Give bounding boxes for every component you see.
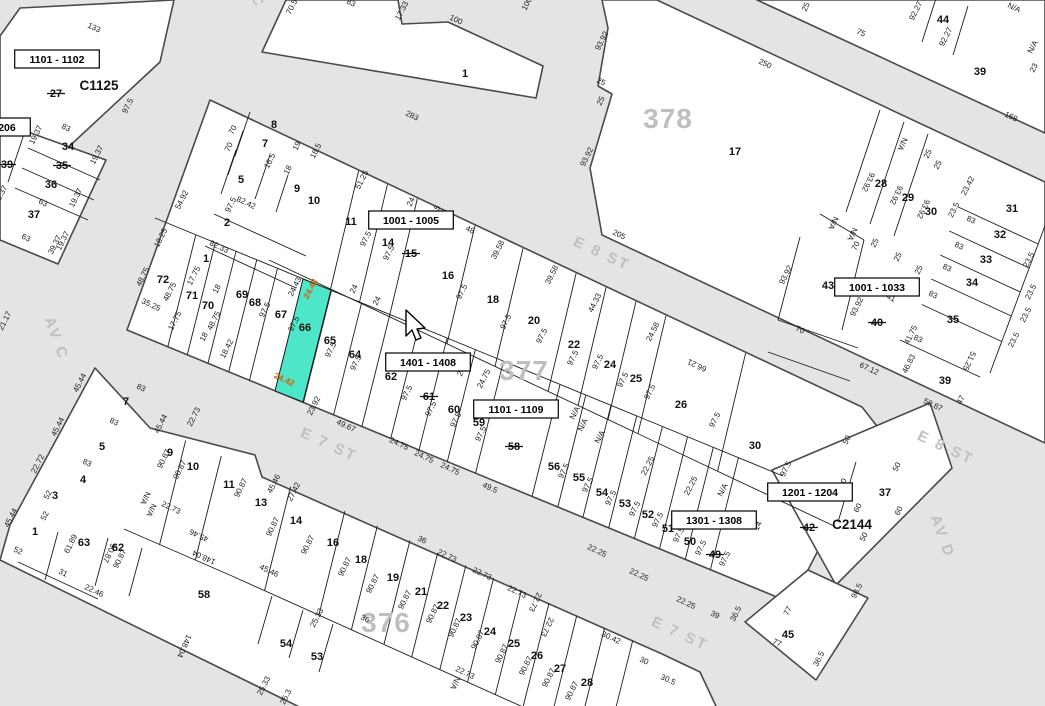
- lot-label-53[interactable]: 53: [619, 498, 631, 510]
- lot-label-60[interactable]: 60: [448, 404, 460, 416]
- lot-label-62[interactable]: 62: [112, 542, 124, 554]
- lot-label-68[interactable]: 68: [249, 297, 261, 309]
- lot-label-22[interactable]: 22: [568, 339, 580, 351]
- lot-label-27[interactable]: 27: [554, 663, 566, 675]
- lot-label-50[interactable]: 50: [684, 536, 696, 548]
- lot-label-63[interactable]: 63: [78, 537, 90, 549]
- lot-label-34[interactable]: 34: [966, 277, 979, 289]
- lot-label-8[interactable]: 8: [271, 119, 277, 131]
- address-range-label: 1001 - 1005: [383, 215, 439, 227]
- lot-label-7[interactable]: 7: [262, 138, 268, 150]
- block-number-378: 378: [643, 103, 693, 134]
- address-range-label: 1401 - 1408: [400, 357, 456, 369]
- lot-label-20[interactable]: 20: [528, 315, 540, 327]
- lot-label-21[interactable]: 21: [415, 586, 427, 598]
- lot-label-11[interactable]: 11: [223, 479, 235, 491]
- lot-label-26[interactable]: 26: [531, 650, 543, 662]
- lot-label-13[interactable]: 13: [255, 497, 267, 509]
- lot-label-45[interactable]: 45: [782, 629, 794, 641]
- lot-label-18[interactable]: 18: [487, 294, 499, 306]
- dimension-label: 283: [404, 109, 420, 123]
- address-range-label: 1201 - 1204: [782, 487, 838, 499]
- lot-label-58[interactable]: 58: [198, 589, 210, 601]
- lot-label-54[interactable]: 54: [596, 487, 609, 499]
- lot-label-25[interactable]: 25: [508, 638, 520, 650]
- tax-lot-map-canvas[interactable]: 24.4224.42E 8 STE 8 STE 7 STE 7 STAV CAV…: [0, 0, 1045, 706]
- lot-label-10[interactable]: 10: [308, 195, 320, 207]
- address-range-label: 1101 - 1102: [30, 54, 85, 66]
- address-range-label: 1001 - 1033: [849, 282, 905, 294]
- lot-label-52[interactable]: 52: [642, 509, 654, 521]
- lot-label-64[interactable]: 64: [349, 349, 362, 361]
- lot-label-7[interactable]: 7: [123, 396, 129, 408]
- lot-label-14[interactable]: 14: [290, 515, 303, 527]
- dimension-label: 100: [520, 0, 534, 12]
- lot-label-25[interactable]: 25: [630, 373, 642, 385]
- address-range-label: 1301 - 1308: [686, 515, 742, 527]
- lot-label-16[interactable]: 16: [442, 270, 454, 282]
- lot-label-26[interactable]: 26: [675, 399, 687, 411]
- lot-label-54[interactable]: 54: [280, 638, 293, 650]
- lot-label-9[interactable]: 9: [294, 183, 300, 195]
- lot-label-39[interactable]: 39: [974, 66, 986, 78]
- lot-label-28[interactable]: 28: [875, 178, 887, 190]
- lot-label-19[interactable]: 19: [387, 572, 399, 584]
- lot-label-28[interactable]: 28: [581, 677, 593, 689]
- lot-label-C2144[interactable]: C2144: [832, 517, 872, 532]
- lot-label-29[interactable]: 29: [902, 192, 914, 204]
- lot-label-2[interactable]: 2: [224, 217, 230, 229]
- lot-label-70[interactable]: 70: [202, 300, 214, 312]
- lot-label-69[interactable]: 69: [236, 289, 248, 301]
- lot-label-44[interactable]: 44: [937, 14, 950, 26]
- lot-label-3[interactable]: 3: [52, 490, 58, 502]
- lot-label-11[interactable]: 11: [345, 216, 357, 228]
- lot-label-17[interactable]: 17: [729, 146, 741, 158]
- lot-label-33[interactable]: 33: [980, 254, 992, 266]
- lot-label-34[interactable]: 34: [62, 141, 75, 153]
- lot-label-24[interactable]: 24: [604, 359, 617, 371]
- lot-label-62[interactable]: 62: [385, 371, 397, 383]
- lot-label-1[interactable]: 1: [32, 526, 38, 538]
- lot-label-36[interactable]: 36: [45, 179, 57, 191]
- lot-label-59[interactable]: 59: [473, 417, 485, 429]
- lot-label-35[interactable]: 35: [947, 314, 959, 326]
- lot-label-14[interactable]: 14: [382, 237, 395, 249]
- lot-label-67[interactable]: 67: [275, 309, 287, 321]
- lot-label-37[interactable]: 37: [879, 487, 891, 499]
- lot-label-65[interactable]: 65: [324, 335, 336, 347]
- address-range-label: 1101 - 1206: [0, 122, 16, 134]
- address-range-label: 1101 - 1109: [489, 404, 544, 416]
- block-number-376: 376: [361, 607, 411, 638]
- lot-label-C1125[interactable]: C1125: [79, 78, 119, 93]
- lot-label-55[interactable]: 55: [573, 472, 585, 484]
- lot-label-24[interactable]: 24: [484, 626, 497, 638]
- lot-label-56[interactable]: 56: [548, 461, 560, 473]
- lot-label-43[interactable]: 43: [822, 280, 834, 292]
- lot-label-1[interactable]: 1: [203, 253, 209, 265]
- lot-label-39[interactable]: 39: [939, 375, 951, 387]
- cadastral-map[interactable]: 24.4224.42E 8 STE 8 STE 7 STE 7 STAV CAV…: [0, 0, 1045, 706]
- lot-label-9[interactable]: 9: [167, 447, 173, 459]
- lot-label-71[interactable]: 71: [186, 290, 198, 302]
- lot-label-5[interactable]: 5: [99, 441, 105, 453]
- lot-label-30[interactable]: 30: [749, 440, 761, 452]
- lot-label-22[interactable]: 22: [437, 600, 449, 612]
- lot-label-72[interactable]: 72: [157, 274, 169, 286]
- lot-label-32[interactable]: 32: [994, 229, 1006, 241]
- lot-label-31[interactable]: 31: [1006, 203, 1018, 215]
- block-number-377: 377: [499, 355, 549, 386]
- lot-label-37[interactable]: 37: [28, 209, 40, 221]
- lot-label-4[interactable]: 4: [80, 474, 87, 486]
- lot-label-66[interactable]: 66: [299, 322, 311, 334]
- lot-label-18[interactable]: 18: [355, 554, 367, 566]
- lot-label-5[interactable]: 5: [238, 174, 244, 186]
- lot-label-23[interactable]: 23: [460, 612, 472, 624]
- lot-label-10[interactable]: 10: [187, 461, 199, 473]
- lot-label-30[interactable]: 30: [925, 206, 937, 218]
- lot-label-16[interactable]: 16: [327, 537, 339, 549]
- lot-label-1[interactable]: 1: [462, 68, 468, 80]
- lot-label-53[interactable]: 53: [311, 651, 323, 663]
- dimension-label: 25: [595, 94, 607, 107]
